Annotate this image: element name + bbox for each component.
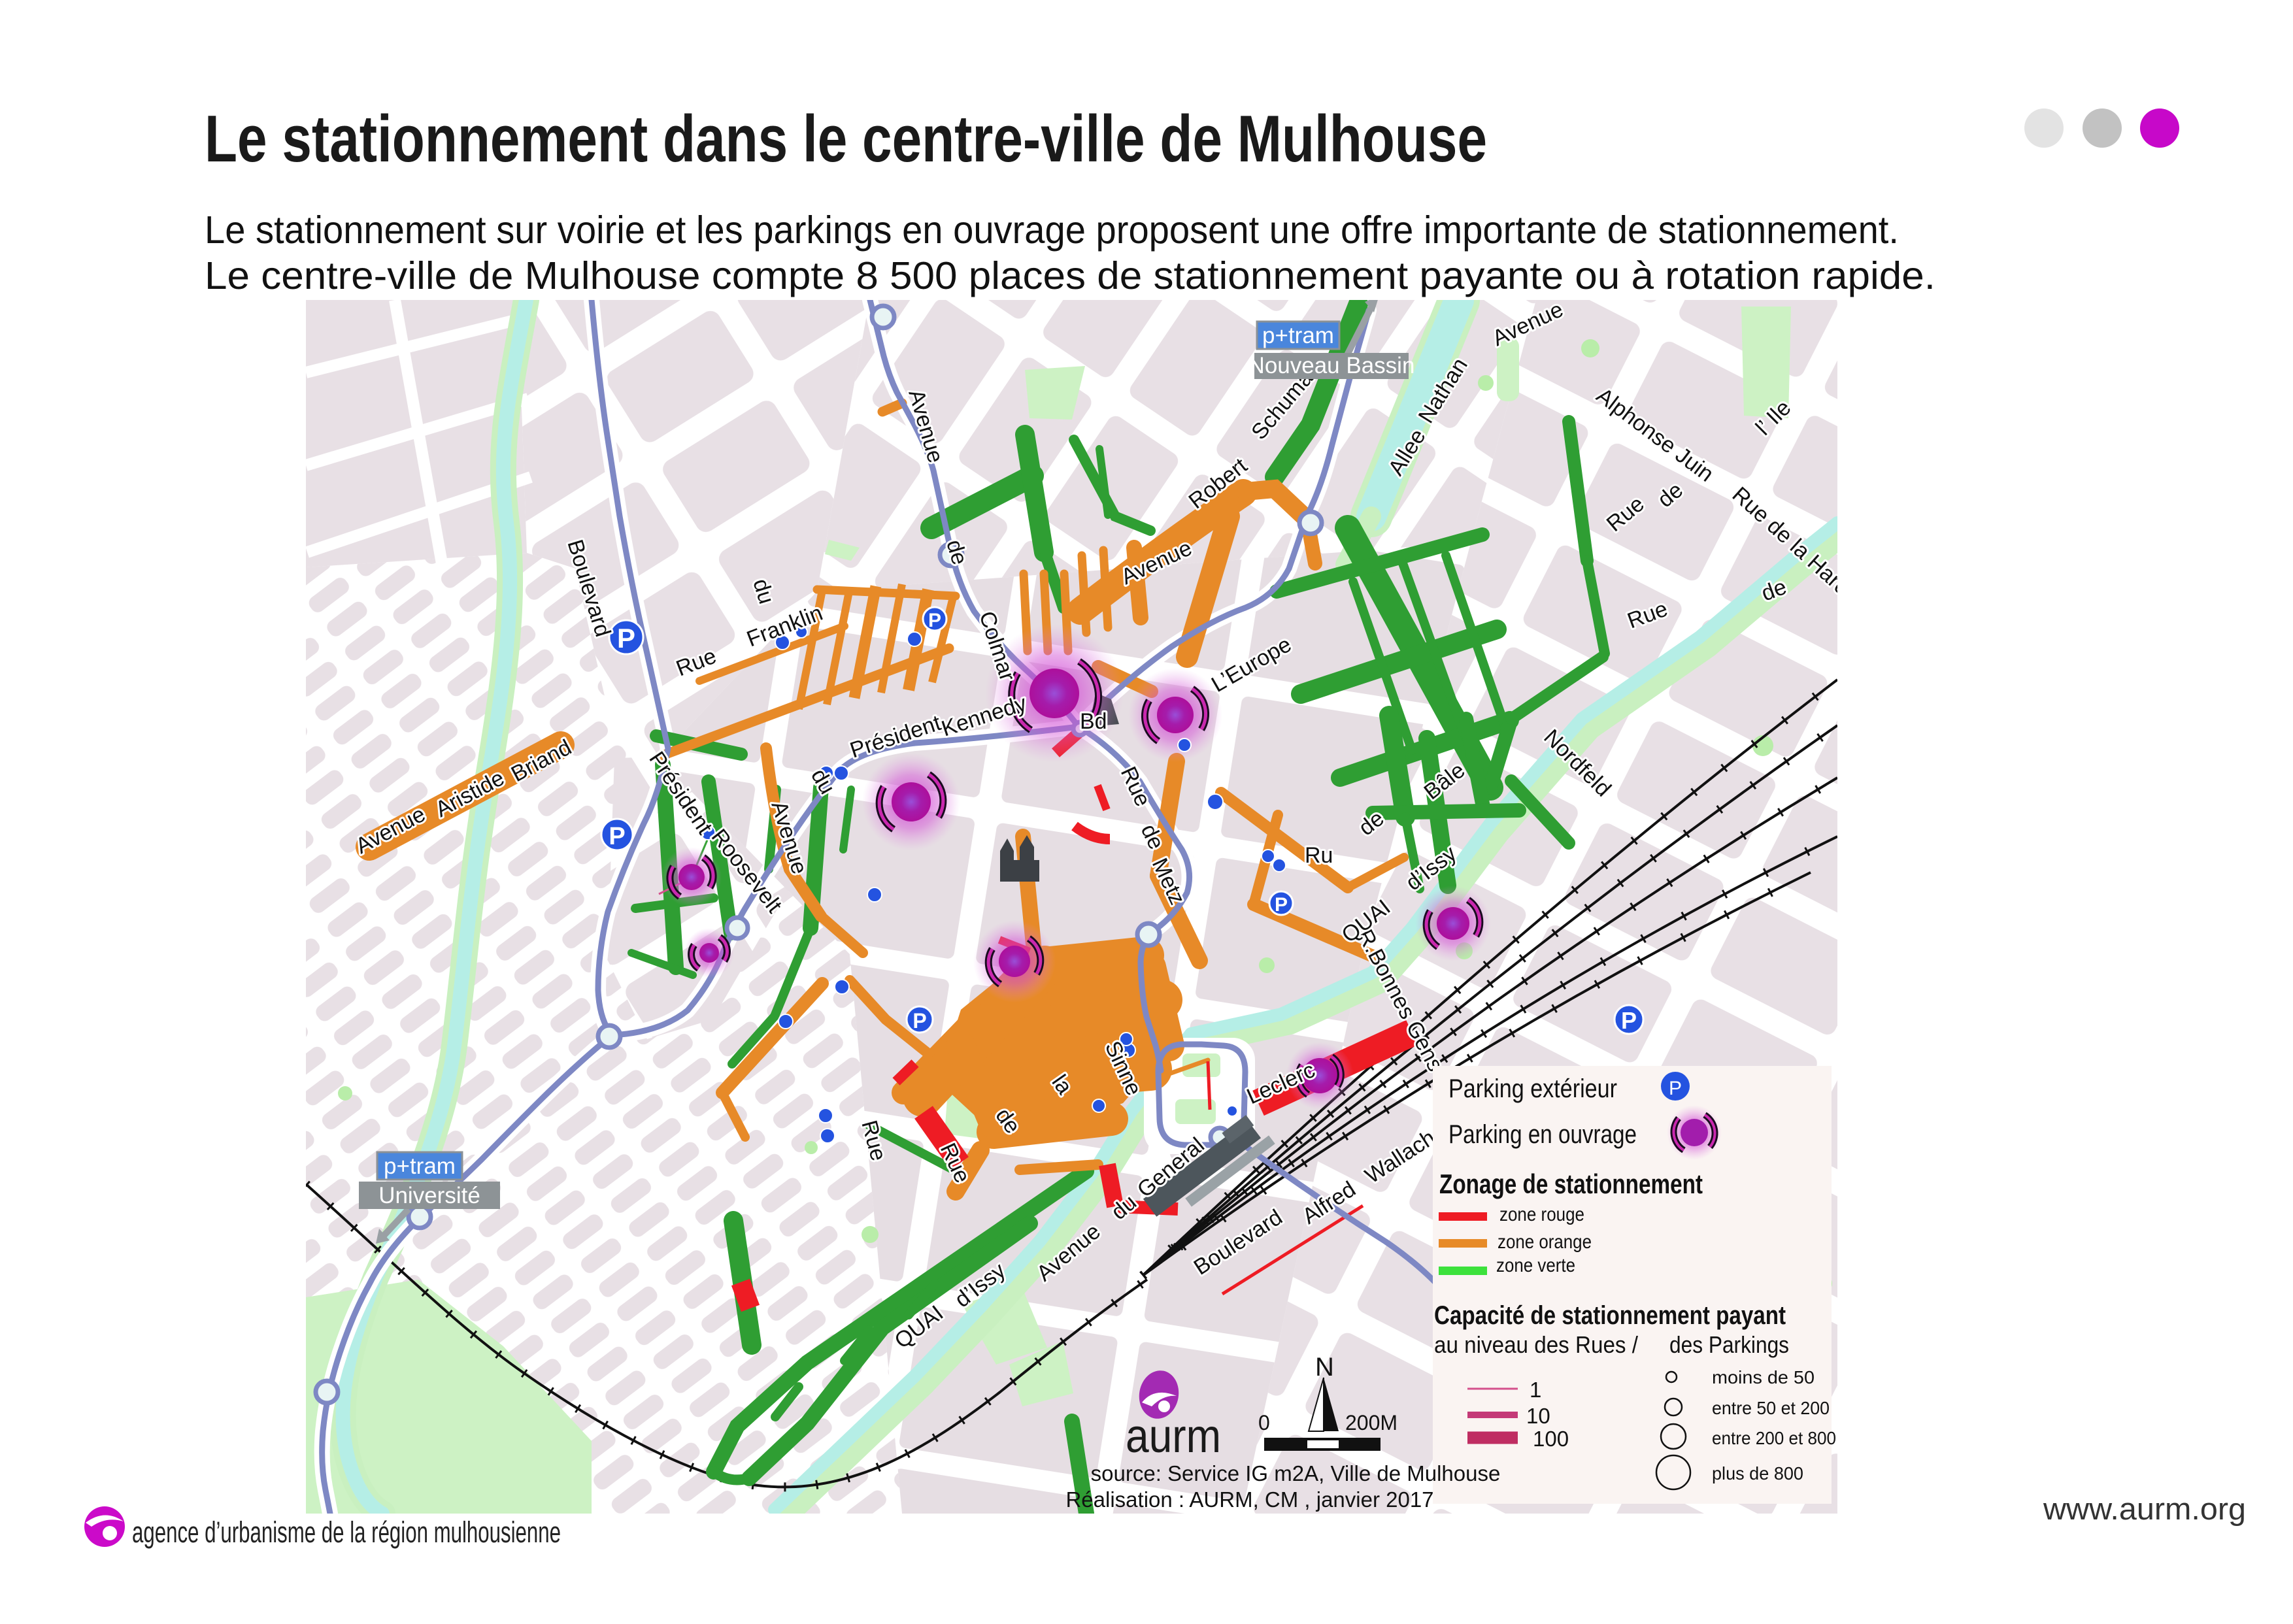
svg-text:des Parkings: des Parkings xyxy=(1669,1331,1789,1358)
svg-text:zone verte: zone verte xyxy=(1496,1255,1575,1276)
svg-text:www.aurm.org: www.aurm.org xyxy=(2043,1491,2246,1526)
svg-text:entre 50 et 200: entre 50 et 200 xyxy=(1712,1398,1830,1418)
svg-text:p+tram: p+tram xyxy=(1262,323,1334,348)
svg-text:P: P xyxy=(912,1009,926,1033)
svg-text:Le centre-ville de Mulhouse co: Le centre-ville de Mulhouse compte 8 500… xyxy=(205,254,1935,297)
svg-text:au niveau des Rues /: au niveau des Rues / xyxy=(1434,1331,1638,1358)
svg-text:P: P xyxy=(617,623,635,654)
svg-text:Le stationnement dans le centr: Le stationnement dans le centre-ville de… xyxy=(205,103,1487,176)
svg-text:Nouveau Bassin: Nouveau Bassin xyxy=(1248,353,1415,378)
svg-text:100: 100 xyxy=(1533,1427,1569,1451)
svg-text:zone orange: zone orange xyxy=(1498,1231,1592,1253)
svg-text:p+tram: p+tram xyxy=(384,1153,456,1179)
svg-text:Capacité de stationnement paya: Capacité de stationnement payant xyxy=(1434,1301,1786,1330)
svg-text:Le stationnement sur voirie et: Le stationnement sur voirie et les parki… xyxy=(205,208,1899,252)
svg-text:200M: 200M xyxy=(1345,1411,1398,1434)
svg-text:plus de 800: plus de 800 xyxy=(1712,1463,1803,1483)
svg-text:Bd: Bd xyxy=(1080,709,1107,734)
svg-text:N: N xyxy=(1315,1353,1334,1382)
svg-text:0: 0 xyxy=(1258,1411,1270,1434)
svg-text:entre 200 et 800: entre 200 et 800 xyxy=(1712,1428,1836,1448)
svg-text:agence d’urbanisme de la régio: agence d’urbanisme de la région mulhousi… xyxy=(132,1516,561,1549)
svg-text:P: P xyxy=(1669,1078,1682,1099)
svg-text:10: 10 xyxy=(1526,1404,1550,1428)
svg-text:P: P xyxy=(1275,894,1288,916)
svg-text:1: 1 xyxy=(1530,1378,1541,1402)
svg-text:P: P xyxy=(609,823,625,850)
svg-text:source: Service IG m2A, Ville: source: Service IG m2A, Ville de Mulhous… xyxy=(1091,1461,1501,1485)
svg-text:Université: Université xyxy=(378,1183,480,1208)
svg-text:Ru: Ru xyxy=(1305,843,1333,868)
svg-text:P: P xyxy=(1621,1007,1637,1034)
svg-text:moins de 50: moins de 50 xyxy=(1712,1367,1815,1387)
svg-text:aurm: aurm xyxy=(1126,1410,1221,1463)
svg-text:Réalisation : AURM, CM , janvi: Réalisation : AURM, CM , janvier 2017 xyxy=(1065,1487,1433,1512)
svg-text:zone rouge: zone rouge xyxy=(1499,1204,1584,1225)
svg-text:Parking extérieur: Parking extérieur xyxy=(1448,1074,1617,1103)
svg-text:Zonage de stationnement: Zonage de stationnement xyxy=(1439,1168,1703,1199)
svg-text:P: P xyxy=(928,610,941,631)
svg-text:Parking en ouvrage: Parking en ouvrage xyxy=(1448,1120,1637,1149)
